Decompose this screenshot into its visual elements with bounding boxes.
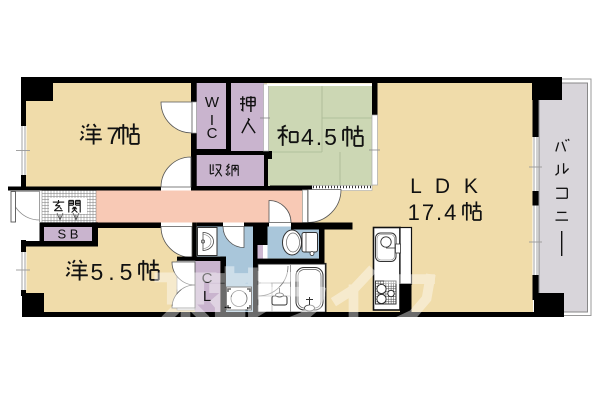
svg-text:L D K: L D K [410, 175, 482, 198]
svg-text:17.4: 17.4 [408, 200, 459, 225]
svg-text:4.5: 4.5 [301, 124, 339, 150]
svg-text:S B: S B [58, 227, 79, 242]
svg-text:5.5: 5.5 [91, 259, 138, 285]
svg-text:W: W [205, 94, 220, 111]
svg-text:7: 7 [106, 123, 119, 150]
svg-text:C: C [207, 125, 218, 142]
